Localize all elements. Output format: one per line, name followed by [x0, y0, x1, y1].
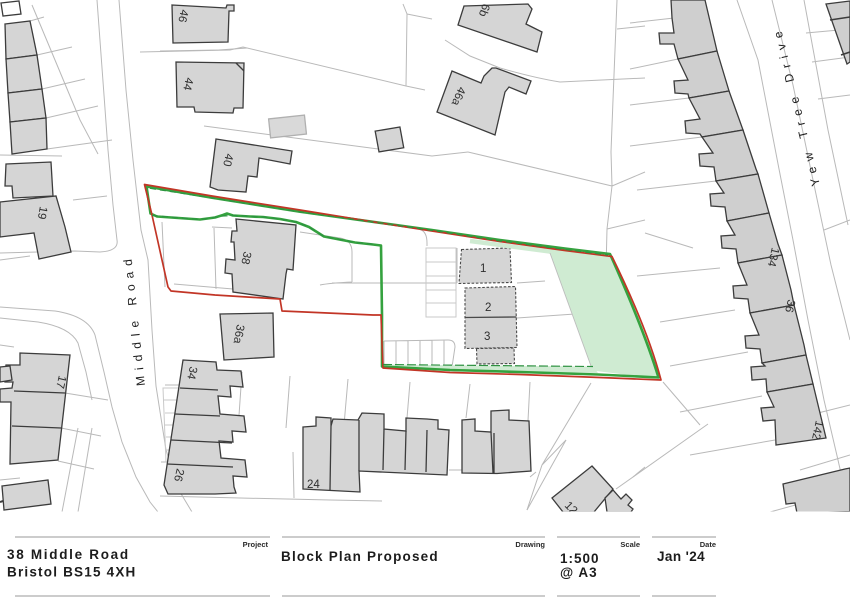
svg-text:Scale: Scale — [620, 540, 640, 549]
svg-text:Jan '24: Jan '24 — [657, 549, 705, 564]
svg-text:Drawing: Drawing — [515, 540, 545, 549]
svg-text:24: 24 — [307, 479, 320, 491]
svg-text:2: 2 — [485, 302, 491, 314]
svg-text:3: 3 — [484, 331, 490, 343]
svg-text:Bristol BS15 4XH: Bristol BS15 4XH — [7, 565, 137, 580]
svg-text:@ A3: @ A3 — [560, 565, 598, 580]
svg-text:Project: Project — [243, 540, 269, 549]
svg-text:Block Plan Proposed: Block Plan Proposed — [281, 549, 439, 564]
svg-text:Date: Date — [700, 540, 716, 549]
svg-text:38 Middle Road: 38 Middle Road — [7, 547, 130, 562]
svg-text:1:500: 1:500 — [560, 551, 600, 566]
svg-text:1: 1 — [480, 263, 486, 275]
svg-text:19: 19 — [35, 205, 49, 220]
